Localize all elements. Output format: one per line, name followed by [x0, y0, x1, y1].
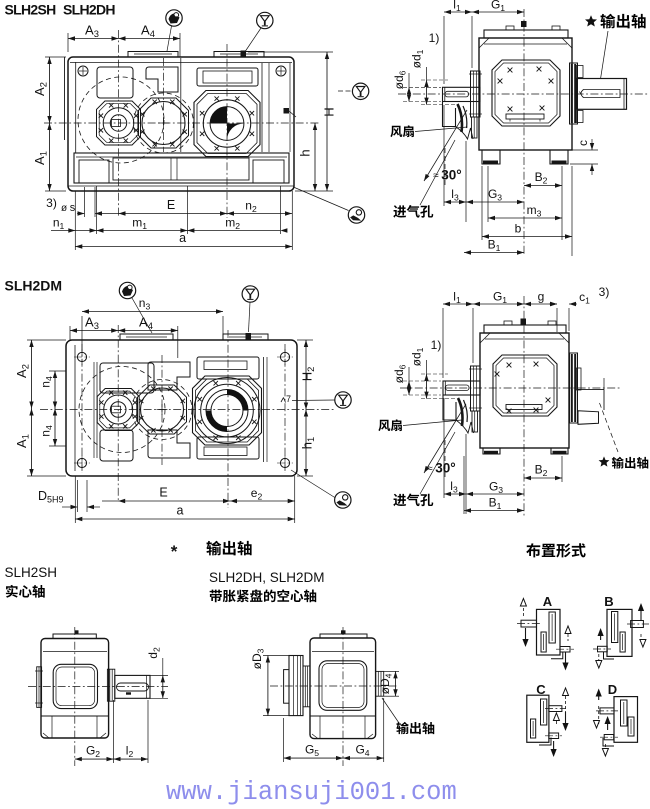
svg-text:30°: 30°: [435, 461, 455, 476]
svg-text:SLH2DH: SLH2DH: [63, 2, 115, 18]
svg-text:≈: ≈: [433, 171, 439, 182]
svg-text:3): 3): [599, 285, 610, 299]
svg-text:a: a: [177, 504, 184, 518]
svg-text:H: H: [322, 107, 337, 116]
svg-text:www.jiansuji001.com: www.jiansuji001.com: [166, 778, 457, 807]
svg-text:b: b: [515, 222, 522, 236]
svg-text:SLH2DH, SLH2DM: SLH2DH, SLH2DM: [209, 570, 325, 585]
svg-text:*: *: [171, 542, 178, 561]
svg-text:c: c: [576, 140, 590, 146]
svg-text:SLH2SH: SLH2SH: [5, 2, 57, 18]
svg-text:g: g: [538, 290, 545, 304]
svg-text:E: E: [167, 198, 175, 212]
svg-text:D: D: [608, 682, 617, 697]
svg-text:7: 7: [286, 394, 291, 404]
svg-text:ø: ø: [61, 203, 67, 214]
svg-text:a: a: [179, 231, 186, 245]
svg-text:h: h: [298, 149, 313, 156]
svg-text:s: s: [70, 202, 76, 214]
svg-text:1): 1): [431, 338, 442, 352]
svg-text:1): 1): [429, 31, 440, 45]
svg-text:3): 3): [46, 196, 57, 210]
svg-text:B: B: [604, 594, 613, 609]
svg-text:SLH2SH: SLH2SH: [5, 565, 58, 580]
svg-text:E: E: [159, 486, 167, 500]
svg-text:A: A: [543, 594, 553, 609]
svg-text:SLH2DM: SLH2DM: [5, 278, 63, 294]
